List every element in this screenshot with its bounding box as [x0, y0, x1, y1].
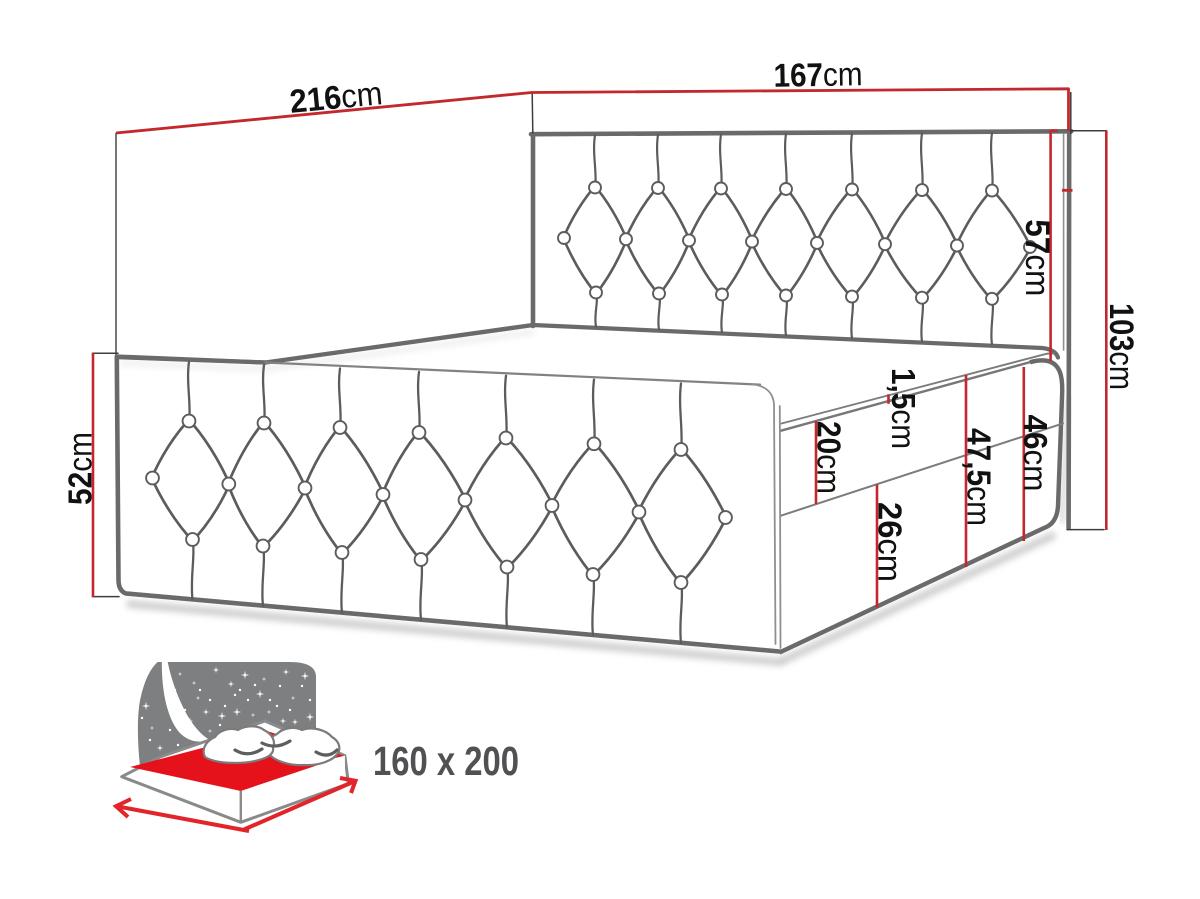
svg-text:47,5cm: 47,5cm [961, 428, 998, 526]
svg-text:46cm: 46cm [1017, 415, 1054, 492]
svg-text:103cm: 103cm [1102, 303, 1140, 390]
svg-text:52cm: 52cm [61, 432, 98, 505]
svg-text:167cm: 167cm [773, 55, 863, 94]
svg-text:160 x 200: 160 x 200 [373, 738, 519, 784]
svg-text:20cm: 20cm [811, 421, 848, 494]
svg-text:1,5cm: 1,5cm [885, 368, 922, 449]
svg-text:26cm: 26cm [872, 502, 909, 582]
svg-text:57cm: 57cm [1018, 219, 1056, 296]
